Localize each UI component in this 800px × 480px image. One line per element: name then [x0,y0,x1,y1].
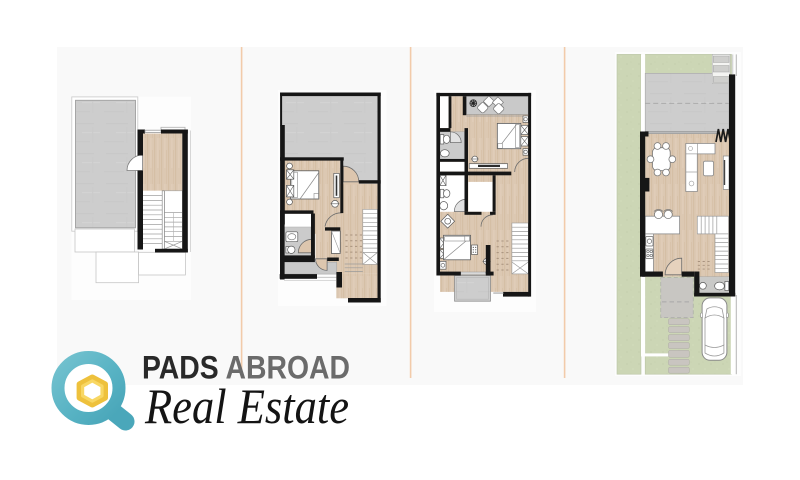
svg-text:Real Estate: Real Estate [144,379,349,434]
